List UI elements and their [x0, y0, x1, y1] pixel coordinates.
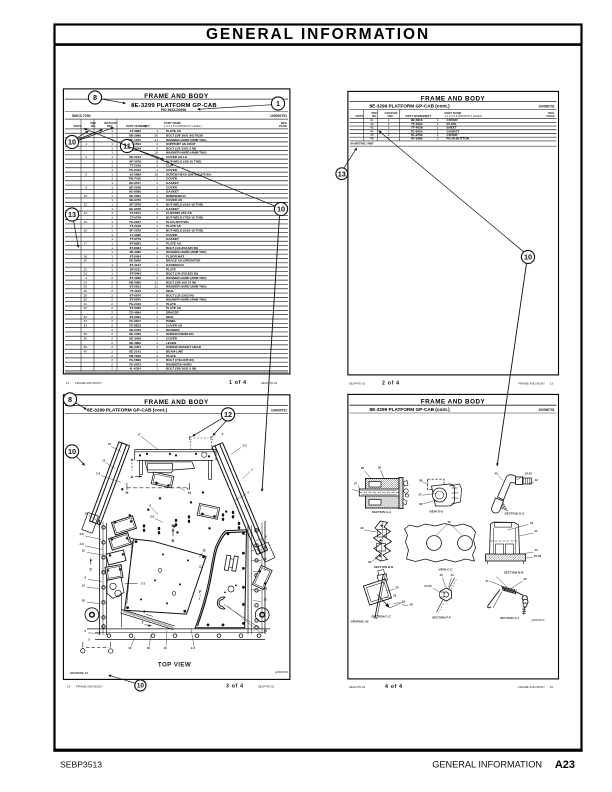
svg-text:FRAME AND BODY: FRAME AND BODY: [518, 382, 545, 386]
svg-text:BOLT (3/8-16X1.0 IN): BOLT (3/8-16X1.0 IN): [166, 367, 196, 371]
svg-text:VIEW D-D: VIEW D-D: [429, 510, 444, 514]
svg-text:15: 15: [102, 459, 106, 463]
svg-text:13: 13: [68, 210, 76, 219]
svg-text:GENERAL INFORMATION: GENERAL INFORMATION: [206, 26, 430, 43]
svg-text:E: E: [210, 435, 213, 440]
svg-text:10: 10: [277, 205, 285, 214]
svg-text:FRAME AND BODY: FRAME AND BODY: [421, 399, 486, 406]
svg-text:4: 4: [85, 155, 87, 159]
svg-text:27: 27: [354, 482, 358, 486]
svg-text:PAGE: PAGE: [547, 114, 555, 118]
svg-text:g00100974: g00100974: [532, 618, 546, 622]
svg-text:SMCS-7250: SMCS-7250: [72, 114, 91, 118]
svg-text:C: C: [199, 565, 202, 569]
svg-text:32: 32: [524, 577, 528, 581]
svg-text:2: 2: [437, 137, 439, 141]
svg-text:H: H: [188, 490, 191, 495]
svg-text:IN METRIC UNIT: IN METRIC UNIT: [351, 141, 374, 145]
svg-text:3-8: 3-8: [79, 542, 83, 546]
svg-text:100090751: 100090751: [270, 114, 287, 118]
svg-text:FRAME AND BODY: FRAME AND BODY: [76, 685, 103, 689]
svg-text:43: 43: [439, 573, 443, 577]
svg-text:GRAPHIC #2: GRAPHIC #2: [351, 620, 369, 624]
svg-text:SECTION N-N: SECTION N-N: [504, 571, 524, 575]
svg-text:31: 31: [486, 579, 490, 583]
svg-text:29: 29: [360, 526, 364, 530]
svg-text:SELP47D-01: SELP47D-01: [258, 685, 275, 689]
svg-text:NOTE: NOTE: [74, 124, 82, 128]
svg-text:43: 43: [495, 471, 499, 475]
svg-text:VIEW C-C: VIEW C-C: [439, 568, 454, 572]
svg-text:11: 11: [264, 557, 267, 561]
svg-text:10: 10: [524, 253, 532, 262]
svg-text:A: A: [131, 457, 134, 462]
svg-text:100090751: 100090751: [271, 409, 287, 413]
svg-text:J: J: [141, 621, 143, 625]
svg-text:SECTION J-J: SECTION J-J: [500, 616, 519, 620]
svg-text:J: J: [143, 610, 145, 614]
svg-text:46: 46: [370, 137, 374, 141]
svg-text:3-8: 3-8: [79, 532, 83, 536]
svg-text:2: 2: [111, 367, 113, 371]
svg-text:NOTE: NOTE: [356, 114, 364, 118]
svg-text:2-3: 2-3: [191, 646, 195, 650]
svg-text:17: 17: [84, 241, 88, 245]
svg-text:13: 13: [163, 646, 167, 650]
svg-text:12: 12: [264, 598, 268, 602]
svg-text:SECTION F-F: SECTION F-F: [432, 616, 451, 620]
svg-text:14: 14: [264, 629, 268, 633]
svg-text:34: 34: [402, 600, 406, 604]
svg-text:A23: A23: [555, 759, 575, 771]
svg-text:24-25: 24-25: [525, 471, 533, 475]
svg-text:23: 23: [530, 521, 534, 525]
svg-text:SECTION C-C: SECTION C-C: [371, 615, 391, 619]
svg-text:38: 38: [419, 479, 423, 483]
svg-text:28: 28: [361, 466, 365, 470]
svg-text:3-8: 3-8: [263, 546, 267, 550]
svg-text:8Y-1989: 8Y-1989: [411, 137, 423, 141]
svg-text:8E-3299 PLATFORM GP-CAB (cont.: 8E-3299 PLATFORM GP-CAB (cont.): [370, 104, 451, 109]
svg-text:1 2 3 4 5 6 (PRODUCT LEV: 1 2 3 4 5 6 (PRODUCT LEVEL): [164, 124, 202, 128]
svg-text:10: 10: [84, 194, 88, 198]
svg-text:3 of 4: 3 of 4: [226, 684, 244, 690]
svg-text:QTY: QTY: [144, 124, 150, 128]
svg-text:10: 10: [68, 447, 76, 456]
svg-text:E: E: [189, 435, 192, 440]
svg-text:TOP VIEW: TOP VIEW: [158, 662, 191, 669]
svg-text:100090751: 100090751: [539, 408, 555, 412]
svg-text:A: A: [131, 474, 134, 479]
svg-text:33: 33: [393, 594, 397, 598]
svg-text:36: 36: [378, 466, 382, 470]
svg-text:14: 14: [67, 685, 71, 689]
svg-text:4L-6354: 4L-6354: [129, 367, 141, 371]
svg-text:10: 10: [84, 512, 88, 516]
svg-text:3-8: 3-8: [263, 587, 267, 591]
svg-text:6: 6: [85, 185, 87, 189]
svg-text:12: 12: [84, 203, 88, 207]
svg-text:100090751: 100090751: [539, 105, 555, 109]
svg-text:H: H: [125, 490, 128, 495]
svg-text:2-3: 2-3: [243, 444, 247, 448]
svg-text:15: 15: [84, 220, 88, 224]
svg-text:18: 18: [108, 442, 112, 446]
svg-text:SECTION A-A: SECTION A-A: [372, 510, 392, 514]
svg-text:41: 41: [534, 529, 538, 533]
svg-text:36: 36: [419, 502, 423, 506]
svg-text:FRAME AND BODY: FRAME AND BODY: [75, 381, 102, 385]
svg-text:42: 42: [535, 478, 539, 482]
svg-text:24-25: 24-25: [424, 584, 432, 588]
svg-text:PLUG-BUTTON: PLUG-BUTTON: [447, 137, 470, 141]
svg-text:8E-3299 PLATFORM GP-CAB (cont.: 8E-3299 PLATFORM GP-CAB (cont.): [370, 407, 451, 412]
svg-text:G: G: [203, 548, 206, 552]
svg-text:2-3: 2-3: [96, 472, 100, 476]
svg-text:PAGE: PAGE: [279, 124, 287, 128]
svg-text:20: 20: [84, 259, 88, 263]
svg-text:10: 10: [68, 138, 76, 147]
svg-text:13: 13: [338, 169, 346, 178]
svg-text:30: 30: [368, 560, 372, 564]
svg-text:12: 12: [224, 410, 232, 419]
svg-text:1: 1: [276, 99, 280, 108]
svg-text:40: 40: [84, 349, 88, 353]
svg-text:5: 5: [85, 172, 87, 176]
svg-text:13: 13: [550, 382, 554, 386]
svg-text:35: 35: [396, 586, 400, 590]
svg-text:15: 15: [550, 685, 554, 689]
svg-text:FRAME AND BODY: FRAME AND BODY: [144, 399, 209, 406]
svg-text:SEBP3513: SEBP3513: [60, 760, 102, 770]
svg-text:2-3: 2-3: [141, 581, 145, 585]
svg-text:38: 38: [84, 336, 88, 340]
svg-text:2 of 4: 2 of 4: [382, 381, 400, 387]
svg-text:46: 46: [447, 520, 451, 524]
svg-text:8E-3299 PLATFORM GP-CAB (cont.: 8E-3299 PLATFORM GP-CAB (cont.): [87, 408, 168, 413]
svg-text:SECTION G-G: SECTION G-G: [505, 511, 526, 515]
svg-text:NO: NO: [91, 124, 96, 128]
svg-text:10: 10: [137, 683, 145, 690]
svg-text:37: 37: [419, 493, 423, 497]
svg-text:35: 35: [84, 324, 88, 328]
svg-text:3-8: 3-8: [150, 515, 154, 519]
svg-text:36: 36: [410, 603, 414, 607]
svg-text:SELP47D-01: SELP47D-01: [349, 685, 366, 689]
svg-text:16: 16: [128, 646, 132, 650]
svg-text:g00006729: g00006729: [275, 670, 289, 674]
svg-text:QTY: QTY: [426, 114, 432, 118]
svg-text:14: 14: [84, 211, 88, 215]
svg-text:1: 1: [156, 367, 158, 371]
svg-text:SELP47D-01: SELP47D-01: [349, 382, 366, 386]
svg-text:C: C: [89, 567, 92, 571]
svg-text:20: 20: [82, 598, 86, 602]
svg-text:1: 1: [85, 142, 87, 146]
svg-text:16: 16: [84, 228, 88, 232]
svg-text:SECTION B-B: SECTION B-B: [374, 565, 394, 569]
svg-text:8: 8: [68, 395, 72, 404]
svg-text:GRAPHIC #1: GRAPHIC #1: [70, 671, 88, 675]
svg-text:GENERAL INFORMATION: GENERAL INFORMATION: [432, 760, 542, 770]
svg-text:18: 18: [147, 646, 151, 650]
svg-text:12: 12: [66, 381, 70, 385]
svg-text:25-26: 25-26: [534, 554, 542, 558]
svg-text:40: 40: [534, 548, 538, 552]
svg-text:4 of 4: 4 of 4: [385, 684, 403, 690]
svg-text:FRAME AND BODY: FRAME AND BODY: [518, 685, 545, 689]
svg-text:22: 22: [82, 548, 86, 552]
svg-text:21: 21: [82, 584, 86, 588]
svg-text:17: 17: [137, 433, 141, 437]
svg-text:44: 44: [450, 573, 454, 577]
svg-text:32: 32: [84, 306, 88, 310]
svg-text:1 of 4: 1 of 4: [229, 380, 247, 386]
svg-text:B: B: [172, 538, 175, 543]
svg-text:8: 8: [93, 93, 97, 102]
svg-text:B: B: [172, 523, 175, 528]
